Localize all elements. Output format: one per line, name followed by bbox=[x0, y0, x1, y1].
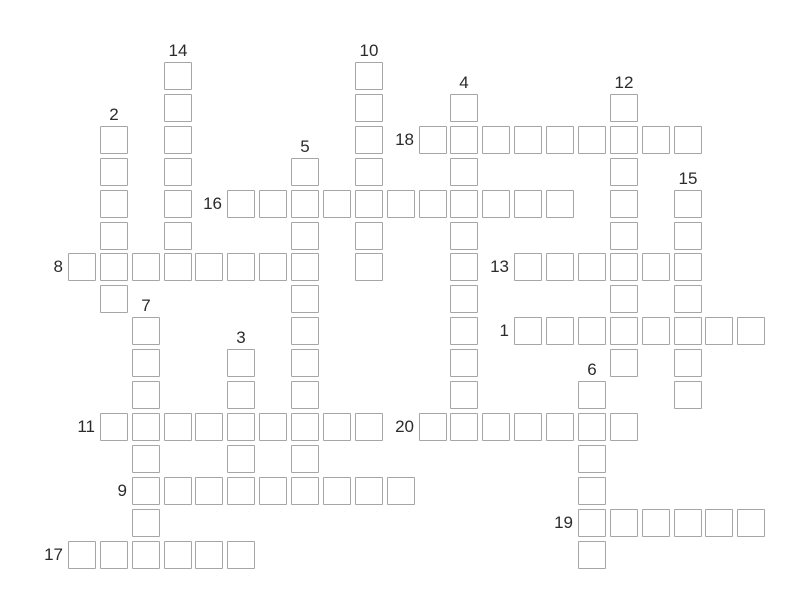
crossword-cell[interactable] bbox=[100, 285, 128, 313]
clue-number: 15 bbox=[668, 169, 708, 189]
crossword-cell[interactable] bbox=[674, 253, 702, 281]
crossword-cell[interactable] bbox=[100, 541, 128, 569]
crossword-cell[interactable] bbox=[482, 126, 510, 154]
crossword-cell[interactable] bbox=[100, 222, 128, 250]
crossword-cell[interactable] bbox=[100, 126, 128, 154]
crossword-cell[interactable] bbox=[674, 222, 702, 250]
crossword-cell[interactable] bbox=[642, 253, 670, 281]
crossword-cell[interactable] bbox=[195, 541, 223, 569]
crossword-cell[interactable] bbox=[450, 126, 478, 154]
crossword-cell[interactable] bbox=[674, 349, 702, 377]
crossword-cell[interactable] bbox=[291, 317, 319, 345]
crossword-cell[interactable] bbox=[259, 413, 287, 441]
crossword-cell[interactable] bbox=[227, 413, 255, 441]
crossword-cell[interactable] bbox=[450, 94, 478, 122]
crossword-cell[interactable] bbox=[642, 509, 670, 537]
crossword-cell[interactable] bbox=[227, 445, 255, 473]
crossword-cell[interactable] bbox=[546, 253, 574, 281]
crossword-cell[interactable] bbox=[323, 413, 351, 441]
crossword-cell[interactable] bbox=[227, 541, 255, 569]
clue-number: 2 bbox=[94, 105, 134, 125]
crossword-cell[interactable] bbox=[482, 413, 510, 441]
crossword-cell[interactable] bbox=[100, 158, 128, 186]
clue-number: 20 bbox=[374, 413, 414, 441]
crossword-cell[interactable] bbox=[259, 190, 287, 218]
crossword-cell[interactable] bbox=[546, 126, 574, 154]
crossword-cell[interactable] bbox=[68, 253, 96, 281]
crossword-cell[interactable] bbox=[132, 477, 160, 505]
crossword-cell[interactable] bbox=[355, 158, 383, 186]
crossword-cell[interactable] bbox=[450, 381, 478, 409]
clue-number: 3 bbox=[221, 328, 261, 348]
crossword-cell[interactable] bbox=[514, 190, 542, 218]
clue-number: 17 bbox=[23, 541, 63, 569]
crossword-cell[interactable] bbox=[227, 253, 255, 281]
clue-number: 14 bbox=[158, 41, 198, 61]
crossword-cell[interactable] bbox=[227, 477, 255, 505]
crossword-cell[interactable] bbox=[132, 509, 160, 537]
crossword-cell[interactable] bbox=[291, 285, 319, 313]
crossword-cell[interactable] bbox=[578, 541, 606, 569]
crossword-cell[interactable] bbox=[674, 317, 702, 345]
crossword-cell[interactable] bbox=[514, 317, 542, 345]
clue-number: 16 bbox=[182, 190, 222, 218]
crossword-cell[interactable] bbox=[227, 349, 255, 377]
crossword-cell[interactable] bbox=[642, 317, 670, 345]
crossword-cell[interactable] bbox=[291, 413, 319, 441]
clue-number: 19 bbox=[533, 509, 573, 537]
crossword-cell[interactable] bbox=[355, 94, 383, 122]
crossword-cell[interactable] bbox=[419, 126, 447, 154]
crossword-cell[interactable] bbox=[164, 253, 192, 281]
crossword-cell[interactable] bbox=[259, 477, 287, 505]
clue-number: 7 bbox=[126, 296, 166, 316]
crossword-cell[interactable] bbox=[100, 413, 128, 441]
crossword-cell[interactable] bbox=[610, 509, 638, 537]
clue-number: 12 bbox=[604, 73, 644, 93]
crossword-cell[interactable] bbox=[610, 222, 638, 250]
crossword-cell[interactable] bbox=[387, 190, 415, 218]
crossword-cell[interactable] bbox=[387, 477, 415, 505]
crossword-cell[interactable] bbox=[164, 477, 192, 505]
crossword-cell[interactable] bbox=[355, 253, 383, 281]
crossword-cell[interactable] bbox=[450, 222, 478, 250]
crossword-cell[interactable] bbox=[291, 222, 319, 250]
crossword-cell[interactable] bbox=[227, 381, 255, 409]
crossword-cell[interactable] bbox=[132, 541, 160, 569]
crossword-cell[interactable] bbox=[164, 158, 192, 186]
crossword-cell[interactable] bbox=[578, 413, 606, 441]
crossword-cell[interactable] bbox=[195, 253, 223, 281]
crossword-cell[interactable] bbox=[642, 126, 670, 154]
crossword-cell[interactable] bbox=[546, 317, 574, 345]
clue-number: 4 bbox=[444, 73, 484, 93]
crossword-cell[interactable] bbox=[737, 509, 765, 537]
crossword-cell[interactable] bbox=[100, 253, 128, 281]
crossword-cell[interactable] bbox=[578, 317, 606, 345]
crossword-cell[interactable] bbox=[195, 413, 223, 441]
crossword-cell[interactable] bbox=[132, 445, 160, 473]
crossword-cell[interactable] bbox=[291, 477, 319, 505]
crossword-cell[interactable] bbox=[514, 413, 542, 441]
crossword-cell[interactable] bbox=[355, 222, 383, 250]
crossword-cell[interactable] bbox=[450, 317, 478, 345]
crossword-cell[interactable] bbox=[164, 126, 192, 154]
crossword-cell[interactable] bbox=[132, 349, 160, 377]
crossword-cell[interactable] bbox=[610, 190, 638, 218]
crossword-cell[interactable] bbox=[227, 190, 255, 218]
crossword-cell[interactable] bbox=[164, 222, 192, 250]
crossword-cell[interactable] bbox=[610, 413, 638, 441]
crossword-cell[interactable] bbox=[674, 381, 702, 409]
crossword-cell[interactable] bbox=[132, 413, 160, 441]
clue-number: 11 bbox=[55, 413, 95, 441]
crossword-cell[interactable] bbox=[578, 253, 606, 281]
crossword-cell[interactable] bbox=[674, 285, 702, 313]
clue-number: 13 bbox=[469, 253, 509, 281]
clue-number: 8 bbox=[23, 253, 63, 281]
crossword-cell[interactable] bbox=[705, 509, 733, 537]
crossword-cell[interactable] bbox=[610, 94, 638, 122]
crossword-cell[interactable] bbox=[450, 413, 478, 441]
crossword-cell[interactable] bbox=[291, 190, 319, 218]
crossword-cell[interactable] bbox=[610, 285, 638, 313]
crossword-cell[interactable] bbox=[514, 126, 542, 154]
clue-number: 6 bbox=[572, 360, 612, 380]
crossword-cell[interactable] bbox=[164, 541, 192, 569]
crossword-cell[interactable] bbox=[450, 349, 478, 377]
crossword-cell[interactable] bbox=[610, 253, 638, 281]
crossword-cell[interactable] bbox=[291, 158, 319, 186]
crossword-cell[interactable] bbox=[514, 253, 542, 281]
crossword-cell[interactable] bbox=[482, 190, 510, 218]
crossword-cell[interactable] bbox=[450, 158, 478, 186]
crossword-cell[interactable] bbox=[419, 190, 447, 218]
crossword-cell[interactable] bbox=[164, 62, 192, 90]
crossword-cell[interactable] bbox=[610, 126, 638, 154]
crossword-cell[interactable] bbox=[450, 285, 478, 313]
crossword-page: { "colors": { "background": "#ffffff", "… bbox=[0, 0, 800, 600]
crossword-cell[interactable] bbox=[610, 317, 638, 345]
crossword-cell[interactable] bbox=[578, 509, 606, 537]
crossword-cell[interactable] bbox=[546, 413, 574, 441]
clue-number: 10 bbox=[349, 41, 389, 61]
crossword-cell[interactable] bbox=[132, 317, 160, 345]
crossword-cell[interactable] bbox=[355, 477, 383, 505]
crossword-cell[interactable] bbox=[705, 317, 733, 345]
crossword-grid: 1234567891011121314151617181920 bbox=[0, 0, 800, 600]
crossword-cell[interactable] bbox=[164, 94, 192, 122]
crossword-cell[interactable] bbox=[132, 381, 160, 409]
crossword-cell[interactable] bbox=[259, 253, 287, 281]
crossword-cell[interactable] bbox=[674, 126, 702, 154]
crossword-cell[interactable] bbox=[578, 445, 606, 473]
crossword-cell[interactable] bbox=[164, 413, 192, 441]
crossword-cell[interactable] bbox=[737, 317, 765, 345]
crossword-cell[interactable] bbox=[450, 190, 478, 218]
crossword-cell[interactable] bbox=[674, 190, 702, 218]
crossword-cell[interactable] bbox=[578, 126, 606, 154]
crossword-cell[interactable] bbox=[195, 477, 223, 505]
crossword-cell[interactable] bbox=[323, 477, 351, 505]
crossword-cell[interactable] bbox=[323, 190, 351, 218]
crossword-cell[interactable] bbox=[291, 349, 319, 377]
crossword-cell[interactable] bbox=[291, 381, 319, 409]
crossword-cell[interactable] bbox=[132, 253, 160, 281]
crossword-cell[interactable] bbox=[291, 445, 319, 473]
clue-number: 18 bbox=[374, 126, 414, 154]
clue-number: 9 bbox=[87, 477, 127, 505]
crossword-cell[interactable] bbox=[674, 509, 702, 537]
crossword-cell[interactable] bbox=[578, 477, 606, 505]
crossword-cell[interactable] bbox=[291, 253, 319, 281]
crossword-cell[interactable] bbox=[419, 413, 447, 441]
crossword-cell[interactable] bbox=[68, 541, 96, 569]
crossword-cell[interactable] bbox=[546, 190, 574, 218]
crossword-cell[interactable] bbox=[610, 158, 638, 186]
crossword-cell[interactable] bbox=[355, 190, 383, 218]
crossword-cell[interactable] bbox=[610, 349, 638, 377]
clue-number: 5 bbox=[285, 137, 325, 157]
crossword-cell[interactable] bbox=[578, 381, 606, 409]
crossword-cell[interactable] bbox=[355, 62, 383, 90]
crossword-cell[interactable] bbox=[100, 190, 128, 218]
